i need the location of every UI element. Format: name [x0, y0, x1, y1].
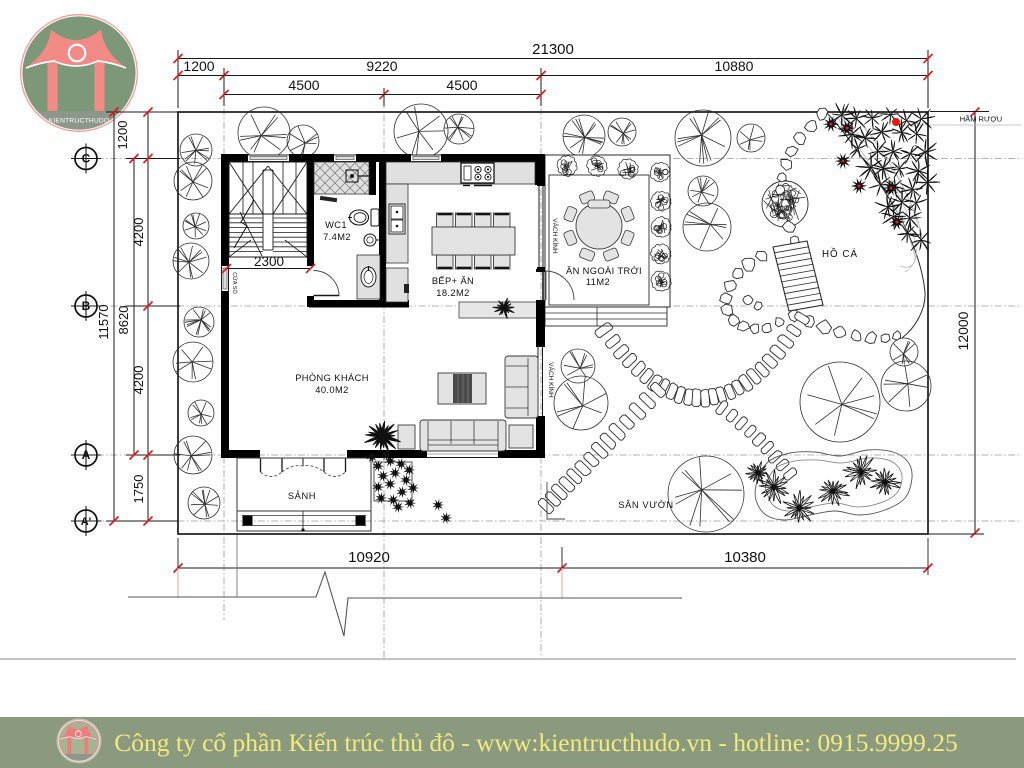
svg-text:10920: 10920 [348, 549, 390, 566]
svg-text:C: C [82, 152, 91, 166]
svg-text:1200: 1200 [115, 121, 130, 150]
svg-text:SÂN VƯỜN: SÂN VƯỜN [618, 500, 673, 510]
svg-text:18.2M2: 18.2M2 [436, 288, 469, 298]
svg-text:VÁCH KÍNH: VÁCH KÍNH [547, 362, 556, 398]
svg-text:A': A' [81, 516, 92, 528]
svg-text:8620: 8620 [116, 306, 131, 335]
svg-text:11M2: 11M2 [586, 277, 610, 287]
svg-text:A: A [82, 448, 91, 462]
svg-text:BẾP+ ĂN: BẾP+ ĂN [432, 276, 474, 286]
svg-text:10380: 10380 [724, 549, 766, 566]
svg-text:21300: 21300 [532, 41, 574, 58]
svg-text:CỬA SỔ: CỬA SỔ [231, 272, 238, 294]
svg-text:4200: 4200 [131, 366, 146, 395]
svg-text:SẢNH: SẢNH [288, 490, 316, 501]
svg-text:HẦM RƯỢU: HẦM RƯỢU [960, 114, 1002, 124]
svg-text:KIENTRUCTHUDO: KIENTRUCTHUDO [49, 118, 110, 125]
svg-text:7.4M2: 7.4M2 [323, 232, 351, 242]
svg-text:ĂN NGOÀI TRỜI: ĂN NGOÀI TRỜI [566, 266, 642, 276]
svg-text:PHÒNG KHÁCH: PHÒNG KHÁCH [295, 373, 369, 383]
svg-text:11570: 11570 [96, 304, 111, 339]
svg-text:4500: 4500 [446, 77, 477, 93]
svg-text:HỒ CÁ: HỒ CÁ [822, 248, 858, 260]
svg-text:1200: 1200 [183, 58, 214, 74]
svg-text:2300: 2300 [254, 254, 284, 269]
svg-text:B: B [82, 299, 91, 313]
svg-text:4500: 4500 [288, 77, 319, 93]
svg-text:1750: 1750 [131, 475, 146, 504]
svg-text:4200: 4200 [131, 218, 146, 247]
svg-text:10880: 10880 [715, 58, 754, 74]
svg-text:WC1: WC1 [325, 220, 347, 230]
svg-text:9220: 9220 [366, 58, 397, 74]
svg-text:Công ty cổ phần Kiến trúc thủ: Công ty cổ phần Kiến trúc thủ đô - www:k… [114, 728, 958, 757]
svg-text:40.0M2: 40.0M2 [315, 385, 348, 395]
svg-text:12000: 12000 [955, 311, 971, 350]
svg-text:VÁCH KÍNH: VÁCH KÍNH [551, 218, 560, 254]
